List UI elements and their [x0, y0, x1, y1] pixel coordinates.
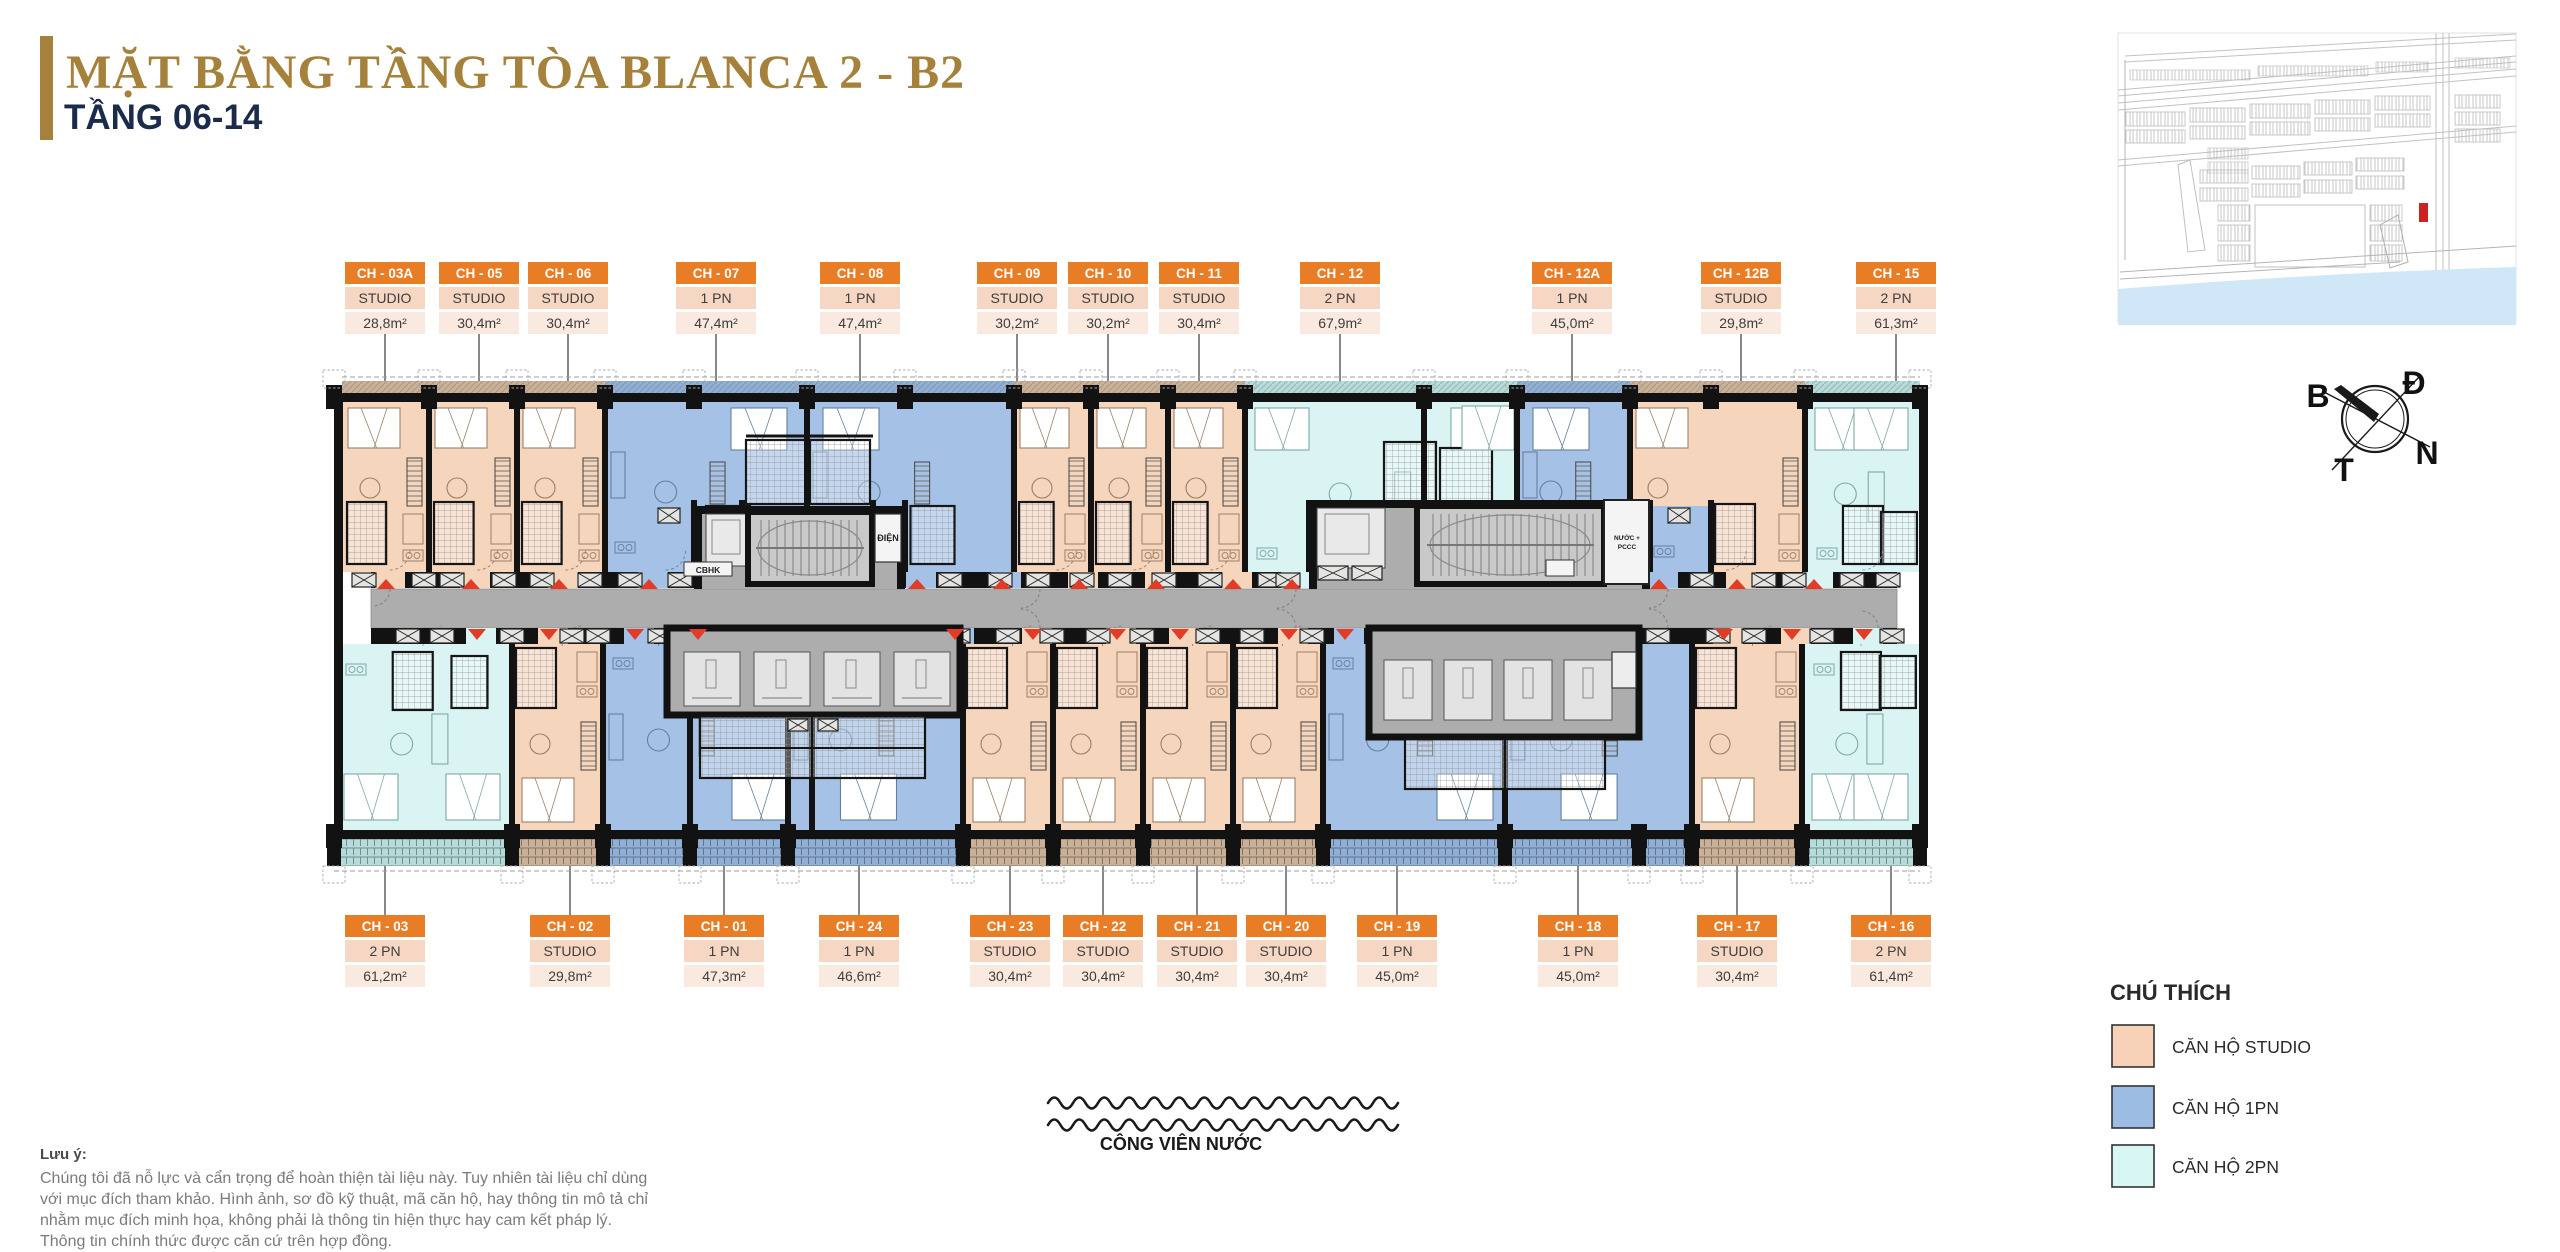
svg-text:STUDIO: STUDIO [1171, 943, 1224, 959]
svg-text:1 PN: 1 PN [708, 943, 739, 959]
svg-text:CH - 21: CH - 21 [1174, 919, 1221, 934]
svg-text:STUDIO: STUDIO [453, 290, 506, 306]
svg-text:28,8m²: 28,8m² [363, 315, 407, 331]
svg-text:2 PN: 2 PN [1880, 290, 1911, 306]
svg-text:CH - 05: CH - 05 [456, 266, 503, 281]
svg-text:61,4m²: 61,4m² [1869, 968, 1913, 984]
svg-text:STUDIO: STUDIO [542, 290, 595, 306]
svg-text:30,4m²: 30,4m² [1177, 315, 1221, 331]
svg-text:CĂN HỘ STUDIO: CĂN HỘ STUDIO [2172, 1036, 2311, 1057]
svg-text:CH - 20: CH - 20 [1263, 919, 1310, 934]
svg-text:2 PN: 2 PN [1875, 943, 1906, 959]
svg-text:1 PN: 1 PN [1381, 943, 1412, 959]
svg-text:CH - 07: CH - 07 [693, 266, 740, 281]
svg-text:STUDIO: STUDIO [1260, 943, 1313, 959]
svg-text:STUDIO: STUDIO [359, 290, 412, 306]
svg-text:CH - 03: CH - 03 [362, 919, 409, 934]
svg-text:B: B [2306, 378, 2329, 414]
svg-text:1 PN: 1 PN [844, 290, 875, 306]
svg-text:Đ: Đ [2402, 365, 2425, 401]
svg-text:CH - 12A: CH - 12A [1544, 266, 1601, 281]
svg-text:1 PN: 1 PN [1562, 943, 1593, 959]
svg-text:CĂN HỘ 2PN: CĂN HỘ 2PN [2172, 1156, 2279, 1177]
svg-text:67,9m²: 67,9m² [1318, 315, 1362, 331]
svg-text:với mục đích tham khảo. Hình ả: với mục đích tham khảo. Hình ảnh, sơ đồ … [40, 1191, 648, 1208]
svg-text:CH - 18: CH - 18 [1555, 919, 1602, 934]
svg-text:CH - 09: CH - 09 [994, 266, 1041, 281]
svg-text:CH - 03A: CH - 03A [357, 266, 414, 281]
svg-text:STUDIO: STUDIO [1711, 943, 1764, 959]
svg-text:CH - 22: CH - 22 [1080, 919, 1127, 934]
svg-text:30,4m²: 30,4m² [1175, 968, 1219, 984]
svg-text:1 PN: 1 PN [700, 290, 731, 306]
svg-text:CHÚ THÍCH: CHÚ THÍCH [2110, 980, 2231, 1005]
svg-text:47,3m²: 47,3m² [702, 968, 746, 984]
svg-text:47,4m²: 47,4m² [694, 315, 738, 331]
svg-text:CH - 06: CH - 06 [545, 266, 592, 281]
svg-text:61,2m²: 61,2m² [363, 968, 407, 984]
svg-text:N: N [2415, 435, 2438, 471]
svg-text:STUDIO: STUDIO [1173, 290, 1226, 306]
svg-text:CBHK: CBHK [696, 565, 721, 575]
svg-text:STUDIO: STUDIO [1077, 943, 1130, 959]
svg-text:30,4m²: 30,4m² [457, 315, 501, 331]
svg-text:1 PN: 1 PN [843, 943, 874, 959]
svg-text:45,0m²: 45,0m² [1550, 315, 1594, 331]
svg-text:TẦNG 06-14: TẦNG 06-14 [64, 97, 263, 137]
svg-text:CH - 23: CH - 23 [987, 919, 1034, 934]
svg-text:CH - 08: CH - 08 [837, 266, 884, 281]
svg-text:CH - 16: CH - 16 [1868, 919, 1915, 934]
svg-text:61,3m²: 61,3m² [1874, 315, 1918, 331]
svg-text:CH - 11: CH - 11 [1176, 266, 1222, 281]
svg-text:CH - 12B: CH - 12B [1713, 266, 1770, 281]
svg-text:2 PN: 2 PN [369, 943, 400, 959]
svg-text:30,4m²: 30,4m² [1715, 968, 1759, 984]
svg-text:NƯỚC +: NƯỚC + [1614, 533, 1640, 542]
svg-text:45,0m²: 45,0m² [1375, 968, 1419, 984]
svg-text:30,2m²: 30,2m² [995, 315, 1039, 331]
svg-text:30,4m²: 30,4m² [1264, 968, 1308, 984]
svg-text:Thông tin chính thức được căn: Thông tin chính thức được căn cứ trên hợ… [40, 1233, 392, 1250]
svg-text:CH - 24: CH - 24 [836, 919, 883, 934]
svg-text:STUDIO: STUDIO [1082, 290, 1135, 306]
svg-text:CH - 15: CH - 15 [1873, 266, 1920, 281]
svg-text:ĐIỆN: ĐIỆN [877, 532, 899, 543]
svg-text:PCCC: PCCC [1618, 544, 1637, 551]
svg-text:47,4m²: 47,4m² [838, 315, 882, 331]
svg-text:nhằm mục đích minh họa, không: nhằm mục đích minh họa, không phải là th… [40, 1210, 612, 1229]
svg-text:CH - 01: CH - 01 [701, 919, 748, 934]
svg-text:1 PN: 1 PN [1556, 290, 1587, 306]
svg-text:STUDIO: STUDIO [544, 943, 597, 959]
svg-text:29,8m²: 29,8m² [548, 968, 592, 984]
svg-text:CH - 17: CH - 17 [1714, 919, 1761, 934]
svg-text:45,0m²: 45,0m² [1556, 968, 1600, 984]
svg-text:Chúng tôi đã nỗ lực và cẩn trọ: Chúng tôi đã nỗ lực và cẩn trọng để hoàn… [40, 1168, 647, 1187]
svg-text:CH - 19: CH - 19 [1374, 919, 1421, 934]
svg-text:STUDIO: STUDIO [984, 943, 1037, 959]
svg-text:30,2m²: 30,2m² [1086, 315, 1130, 331]
svg-text:T: T [2334, 452, 2354, 488]
svg-text:30,4m²: 30,4m² [988, 968, 1032, 984]
svg-text:29,8m²: 29,8m² [1719, 315, 1763, 331]
svg-text:2 PN: 2 PN [1324, 290, 1355, 306]
svg-text:30,4m²: 30,4m² [1081, 968, 1125, 984]
svg-text:Lưu ý:: Lưu ý: [40, 1146, 87, 1163]
svg-text:MẶT BẰNG TẦNG TÒA BLANCA 2 - B: MẶT BẰNG TẦNG TÒA BLANCA 2 - B2 [66, 44, 965, 99]
svg-text:CÔNG VIÊN NƯỚC: CÔNG VIÊN NƯỚC [1100, 1133, 1262, 1154]
svg-text:STUDIO: STUDIO [991, 290, 1044, 306]
svg-text:CH - 02: CH - 02 [547, 919, 594, 934]
svg-text:30,4m²: 30,4m² [546, 315, 590, 331]
svg-text:CH - 10: CH - 10 [1085, 266, 1132, 281]
svg-text:46,6m²: 46,6m² [837, 968, 881, 984]
svg-text:STUDIO: STUDIO [1715, 290, 1768, 306]
svg-text:CH - 12: CH - 12 [1317, 266, 1364, 281]
svg-text:CĂN HỘ 1PN: CĂN HỘ 1PN [2172, 1097, 2279, 1118]
